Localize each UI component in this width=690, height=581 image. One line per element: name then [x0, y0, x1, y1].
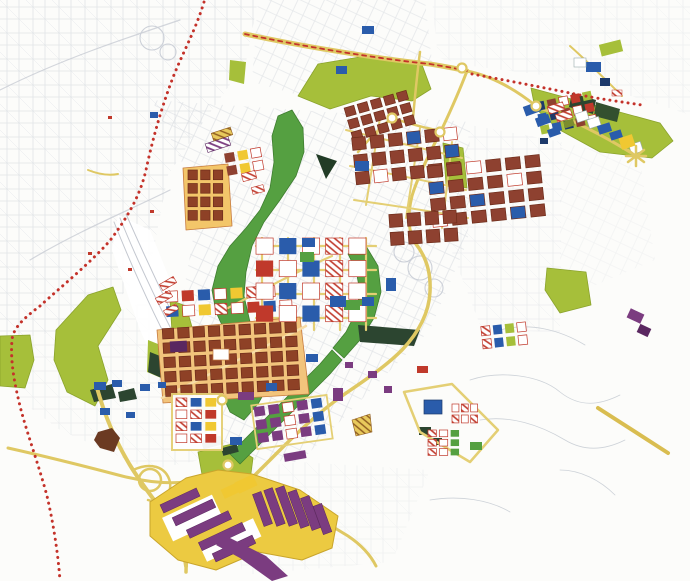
north-district-a-block [390, 150, 405, 164]
north-district-a-block [408, 148, 423, 162]
campus-cluster-block [191, 422, 202, 431]
north-band-block [182, 305, 195, 316]
north-district-b-block [427, 165, 443, 178]
north-district-b-block [510, 206, 526, 219]
campus-cluster-block [191, 434, 202, 443]
central-grid-block [255, 338, 267, 349]
blue-block [362, 297, 374, 306]
campus-cluster-block [205, 410, 216, 419]
north-district-c-block [408, 230, 422, 244]
roundabout [218, 396, 227, 405]
blue-block [150, 112, 158, 118]
se-village-b-block [471, 415, 478, 423]
roundabout [532, 102, 541, 111]
blue-block [94, 382, 106, 390]
blue-block [302, 238, 315, 247]
green-patch [344, 300, 360, 310]
north-district-c-block [426, 229, 440, 243]
central-grid-block [210, 369, 222, 380]
blue-block [336, 66, 347, 74]
campus-cluster-block [205, 434, 216, 443]
central-grid [162, 322, 299, 397]
central-grid-block [285, 336, 297, 347]
blue-block [140, 384, 150, 391]
map-viewport [0, 0, 690, 581]
central-grid-block [239, 324, 251, 335]
ensanche-west-block [201, 211, 210, 221]
central-grid-block [223, 325, 235, 336]
blue-block-ne [586, 62, 601, 72]
central-grid-block [288, 379, 300, 390]
red-dot-building [128, 268, 132, 271]
blue-block [126, 412, 135, 418]
ensanche-west-block [188, 184, 197, 194]
se-village-a-block [451, 449, 459, 456]
central-grid-block [178, 327, 190, 338]
east-central-district-block [326, 238, 343, 254]
se-village-a-block [439, 439, 447, 446]
north-district-b-block [525, 155, 541, 168]
ensanche-west-block [188, 170, 197, 180]
green-patch [470, 442, 482, 450]
north-district-b-block [505, 157, 521, 170]
nw-mixed-cluster-block [250, 147, 261, 158]
north-band-block [182, 290, 195, 301]
west-industrial-block [257, 432, 269, 443]
central-grid-block [241, 367, 253, 378]
roundabout [224, 461, 233, 470]
blue-block [386, 278, 396, 291]
se-village-b-block [461, 415, 468, 423]
east-hamlet-block [506, 336, 516, 346]
central-grid-block [286, 350, 298, 361]
campus-cluster-block [191, 398, 202, 407]
blue-block [362, 26, 374, 34]
north-district-c-block [390, 232, 404, 246]
central-grid-block [211, 383, 223, 394]
campus-cluster-block [176, 398, 187, 407]
west-industrial-block [300, 426, 312, 437]
central-grid-block [287, 365, 299, 376]
north-district-c-block [389, 214, 403, 228]
north-district-b-block [471, 210, 487, 223]
central-grid-block [194, 355, 206, 366]
east-hamlet-block [481, 326, 491, 336]
east-central-district-block [279, 306, 296, 322]
north-district-a-block [388, 133, 403, 147]
central-grid-block [272, 366, 284, 377]
east-central-district-block [256, 306, 273, 322]
east-central-district-block [302, 306, 319, 322]
north-district-b-block [486, 159, 502, 172]
central-grid-block [179, 356, 191, 367]
campus-cluster-block [205, 422, 216, 431]
central-grid-block [240, 353, 252, 364]
central-grid-block [256, 352, 268, 363]
roundabout [458, 64, 467, 73]
west-industrial-block [284, 415, 296, 426]
north-district-a-block [370, 135, 385, 149]
east-hamlet-block [494, 337, 504, 347]
west-industrial-block [312, 411, 324, 422]
north-district-a-block [406, 131, 421, 145]
north-district-b-block [466, 161, 482, 174]
north-district-c-block [443, 210, 457, 224]
east-central-district-block [279, 238, 296, 254]
central-grid-block [193, 326, 205, 337]
north-district-a-block [355, 171, 370, 185]
ensanche-west-block [213, 184, 222, 194]
east-central-district-block [256, 261, 273, 277]
north-district-b-block [450, 196, 466, 209]
se-village-a-block [439, 449, 447, 456]
purple-block [238, 392, 254, 400]
campus-cluster-block [176, 410, 187, 419]
purple-block [333, 388, 343, 401]
north-band-block [199, 304, 212, 315]
urban-master-plan-map [0, 0, 690, 581]
ensanche-west-block [213, 197, 222, 207]
blue-block [100, 408, 110, 415]
central-grid-block [271, 351, 283, 362]
blue-block [330, 296, 346, 307]
central-grid-block [162, 328, 174, 339]
west-industrial-block [268, 404, 280, 415]
central-grid-block [164, 357, 176, 368]
se-village-a [428, 430, 459, 455]
north-band-block [214, 288, 227, 299]
west-industrial-block [270, 417, 282, 428]
west-industrial-block [298, 413, 310, 424]
east-central-district-block [279, 261, 296, 277]
white-block-ne [574, 58, 586, 67]
ensanche-west-block [201, 170, 210, 180]
east-hamlet-block [518, 335, 528, 345]
north-district-b-block [530, 204, 546, 217]
central-grid-block [240, 338, 252, 349]
west-industrial-block [255, 419, 267, 430]
se-village-a-block [439, 430, 447, 437]
red-dot-building [150, 210, 154, 213]
north-district-a-block [372, 152, 387, 166]
dark-purple-block [170, 341, 188, 353]
purple-block [384, 386, 392, 393]
ensanche-west-block [213, 170, 222, 180]
central-grid-block [226, 368, 238, 379]
central-grid-block [194, 341, 206, 352]
roundabout [388, 114, 397, 123]
se-village-b-block [452, 415, 459, 423]
campus-cluster-block [176, 422, 187, 431]
central-grid-block [226, 382, 238, 393]
central-grid-block [195, 370, 207, 381]
se-village-b-block [461, 404, 468, 412]
east-hamlet-block [517, 322, 527, 332]
ensanche-west-block [188, 197, 197, 207]
north-district-b-block [446, 163, 462, 176]
se-village-a-block [451, 439, 459, 446]
central-plaza [213, 349, 229, 360]
north-district-b-block [509, 189, 525, 202]
red-dot-building [88, 252, 92, 255]
east-central-district-block [302, 283, 319, 299]
campus-cluster-block [176, 434, 187, 443]
west-industrial-block [314, 424, 326, 435]
north-district-a-block [445, 144, 460, 158]
ensanche-west-block [213, 211, 222, 221]
central-grid-block [256, 366, 268, 377]
blue-block [230, 437, 242, 445]
central-grid-block [254, 323, 266, 334]
navy-block-ne [600, 78, 610, 86]
north-district-b-block [526, 171, 542, 184]
blue-block [355, 161, 369, 171]
north-district-a-block [392, 167, 407, 181]
east-central-district-block [256, 238, 273, 254]
blue-block-large [424, 400, 442, 414]
east-central-district-block [302, 261, 319, 277]
blue-block [112, 380, 122, 387]
east-hamlet-block [482, 339, 492, 349]
north-district-b-block [469, 194, 485, 207]
se-village-b-block [471, 404, 478, 412]
central-grid-block [208, 326, 220, 337]
north-district-a-block [426, 146, 441, 160]
north-district-c-block [425, 211, 439, 225]
west-industrial-block [296, 400, 308, 411]
west-industrial-block [311, 398, 323, 409]
nw-mixed-cluster-block [226, 165, 237, 176]
north-district-b-block [487, 175, 503, 188]
east-central-district-block [256, 283, 273, 299]
park-small-north [229, 60, 246, 84]
purple-block [345, 362, 353, 368]
campus-cluster-block [205, 398, 216, 407]
blue-block [266, 383, 277, 391]
north-district-b-block [489, 191, 505, 204]
east-central-district-block [279, 283, 296, 299]
west-industrial-block [272, 430, 284, 441]
red-dot-building [108, 116, 112, 119]
east-central-district-block [326, 261, 343, 277]
se-village-a-block [428, 439, 436, 446]
green-patch [300, 252, 314, 262]
north-district-b-block [430, 198, 446, 211]
east-central-district-block [349, 238, 366, 254]
ensanche-west-block [201, 184, 210, 194]
red-block [417, 366, 428, 373]
north-district-b-block [507, 173, 523, 186]
nw-mixed-cluster-block [224, 152, 235, 163]
east-hamlet-block [505, 323, 515, 333]
purple-block [368, 371, 377, 378]
east-central-district-block [349, 261, 366, 277]
west-industrial-block [254, 406, 266, 417]
north-district-a-block [373, 169, 388, 183]
north-district-b-block [491, 208, 507, 221]
north-district-b-block [429, 181, 445, 194]
east-hamlet-block [493, 324, 503, 334]
north-band-block [215, 303, 228, 314]
east-central-district-block [326, 306, 343, 322]
navy-block [540, 138, 548, 144]
north-district-c-block [444, 228, 458, 242]
blue-block [158, 382, 166, 388]
central-grid-block [269, 322, 281, 333]
ensanche-west-block [201, 197, 210, 207]
se-village-b-block [452, 404, 459, 412]
west-industrial-block [286, 428, 298, 439]
north-band-block [230, 287, 243, 298]
north-district-c-block [407, 212, 421, 226]
se-village-a-block [428, 449, 436, 456]
north-band-block [198, 289, 211, 300]
striped-block-ne [612, 90, 622, 96]
central-grid-block [164, 371, 176, 382]
central-grid-block [180, 370, 192, 381]
north-band-block [231, 302, 244, 313]
roundabout [436, 128, 445, 137]
blue-block [306, 354, 318, 362]
nw-mixed-cluster-block [253, 160, 264, 171]
west-industrial-block [282, 402, 294, 413]
north-district-a-block [352, 136, 367, 150]
north-district-b-block [448, 179, 464, 192]
se-village-a-block [451, 430, 459, 437]
central-grid-block [285, 322, 297, 333]
ensanche-west-block [188, 211, 197, 221]
central-grid-block [224, 339, 236, 350]
north-district-b-block [468, 177, 484, 190]
campus-cluster-block [191, 410, 202, 419]
north-district-a-block [410, 165, 425, 179]
east-central-district-block [349, 283, 366, 299]
nw-mixed-cluster-block [237, 150, 248, 161]
central-grid-block [242, 382, 254, 393]
north-district-b-block [528, 187, 544, 200]
central-grid-block [270, 337, 282, 348]
se-village-a-block [428, 430, 436, 437]
